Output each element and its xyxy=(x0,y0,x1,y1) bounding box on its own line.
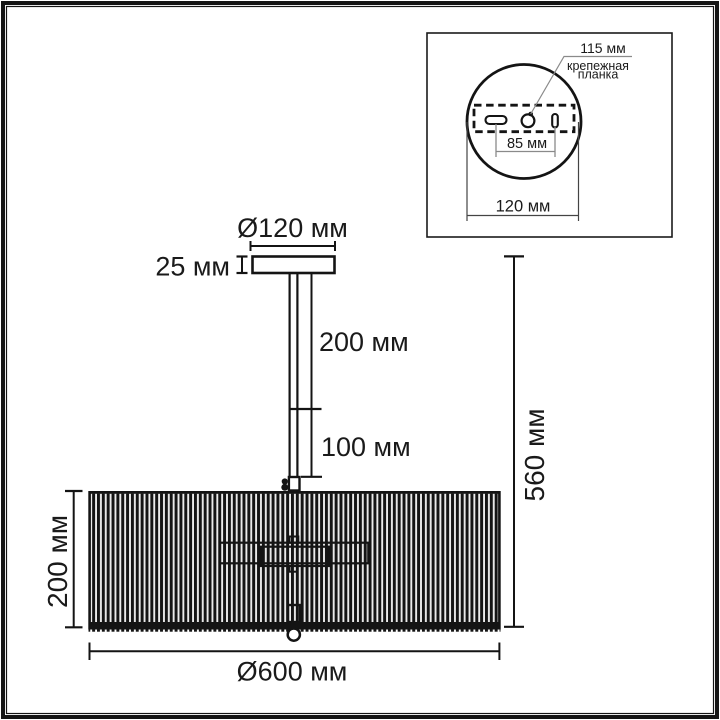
svg-text:25 мм: 25 мм xyxy=(155,252,230,282)
svg-text:115 мм: 115 мм xyxy=(580,40,625,56)
svg-text:планка: планка xyxy=(578,68,619,82)
svg-text:560 мм: 560 мм xyxy=(519,409,550,502)
svg-text:200 мм: 200 мм xyxy=(319,327,409,357)
svg-text:120 мм: 120 мм xyxy=(496,198,551,216)
svg-text:85 мм: 85 мм xyxy=(507,136,547,152)
svg-text:200 мм: 200 мм xyxy=(42,515,73,608)
svg-text:Ø600 мм: Ø600 мм xyxy=(237,657,348,687)
svg-text:100 мм: 100 мм xyxy=(321,432,411,462)
svg-text:Ø120 мм: Ø120 мм xyxy=(237,213,348,243)
